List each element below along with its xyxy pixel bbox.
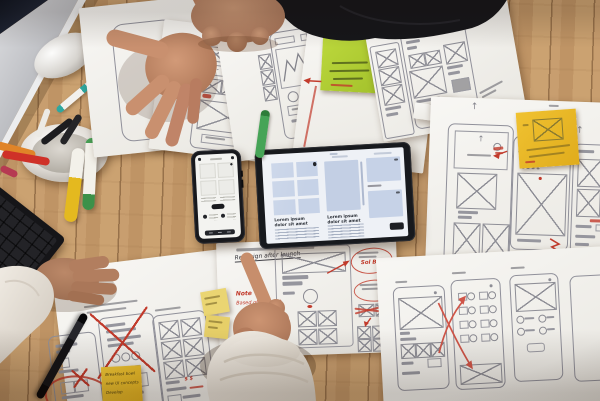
sketch-bar xyxy=(525,329,535,332)
wireframe-card xyxy=(218,179,235,195)
image-box-sketch xyxy=(381,84,405,106)
wireframe-card xyxy=(271,162,293,179)
smartphone xyxy=(191,149,246,244)
sketch-bar xyxy=(576,225,592,229)
phone-screen xyxy=(195,153,241,239)
panel-label xyxy=(367,184,381,187)
image-box-sketch xyxy=(158,320,180,340)
middle-finger xyxy=(79,275,113,276)
tablet-screen: Lorem ipsum dolor sit amet Lorem ipsum d… xyxy=(262,147,409,244)
handwriting xyxy=(333,77,363,80)
card-grid xyxy=(271,161,320,215)
content-panel xyxy=(324,160,361,212)
red-handwriting xyxy=(525,161,535,164)
sketch-bar xyxy=(546,316,554,318)
circle-sketch xyxy=(287,90,300,103)
red-mark xyxy=(590,219,600,222)
title-dash xyxy=(210,157,222,160)
workspace-photo: 14 ⌄ xyxy=(0,0,600,401)
cta-pill-button xyxy=(211,204,224,210)
image-box-sketch xyxy=(163,360,185,380)
sketch-bar xyxy=(458,211,478,214)
dark-sleeve xyxy=(270,0,508,41)
handwriting-label xyxy=(395,281,407,284)
phone-sketch xyxy=(450,278,506,390)
handwriting-label xyxy=(452,272,466,275)
image-box-sketch xyxy=(430,342,445,358)
circle-sketch xyxy=(516,316,524,324)
handwriting xyxy=(529,152,565,158)
up-arrow-sketch: ↑ xyxy=(471,102,479,112)
circle-sketch xyxy=(488,291,496,299)
index-finger xyxy=(75,262,103,266)
profile-icon xyxy=(231,156,234,159)
icon-box-sketch xyxy=(481,333,490,341)
sketch-bar xyxy=(524,317,534,320)
list-item-icon xyxy=(221,214,225,218)
resting-hand xyxy=(0,242,130,377)
red-arrow-left xyxy=(301,72,327,89)
circle-sketch xyxy=(517,328,525,336)
icon-box-sketch xyxy=(459,307,468,315)
pinky-finger xyxy=(73,296,99,300)
card-sketch xyxy=(577,159,600,188)
panel-b xyxy=(368,189,403,218)
wireframe-card xyxy=(297,179,319,196)
circle-sketch xyxy=(489,319,497,327)
header-dash xyxy=(332,155,348,158)
sketch-bar xyxy=(575,243,589,246)
sticky-line: Develop xyxy=(106,389,123,395)
sketch-bar xyxy=(578,150,594,153)
menu-icon xyxy=(198,158,201,161)
fist-shading xyxy=(198,36,278,52)
sticky-line: new UI concepts xyxy=(106,379,139,386)
image-box-sketch xyxy=(400,343,416,359)
sketch-on-sticky xyxy=(532,118,563,142)
price-annotation: $ $ xyxy=(184,375,193,382)
side-button xyxy=(241,171,243,177)
image-box-sketch xyxy=(357,339,371,352)
sketch-bar xyxy=(537,167,540,169)
side-button xyxy=(241,180,243,188)
phone-sketch xyxy=(393,285,450,392)
circle-sketch xyxy=(469,334,477,342)
header-dash xyxy=(374,152,392,155)
icon-box-sketch xyxy=(167,394,182,401)
image-box-sketch xyxy=(180,317,202,337)
tablet: Lorem ipsum dolor sit amet Lorem ipsum d… xyxy=(254,142,415,250)
card-icon xyxy=(313,163,316,166)
handwriting-label xyxy=(155,306,181,311)
wireframe-card xyxy=(298,198,320,215)
thumb xyxy=(115,38,160,50)
phone-sketch: ↑ xyxy=(443,123,514,263)
image-box-sketch xyxy=(161,340,183,360)
wireframe-card xyxy=(200,180,217,196)
circle-sketch xyxy=(489,305,497,313)
caption-lines xyxy=(220,196,235,201)
body-text-lines xyxy=(328,223,365,238)
circle-sketch xyxy=(538,314,546,322)
sketch-bar xyxy=(166,380,180,385)
thumb-box-sketch xyxy=(263,85,278,102)
handwriting xyxy=(523,124,529,126)
sketch-bar xyxy=(385,105,401,111)
sketch-bar xyxy=(402,371,420,375)
body-text-lines xyxy=(275,227,320,240)
nav-dash xyxy=(218,231,222,232)
sketch-bar xyxy=(458,216,472,219)
red-annotation xyxy=(495,152,503,154)
circle-sketch xyxy=(468,320,476,328)
image-box-sketch xyxy=(415,343,431,359)
camera-dot-sketch xyxy=(434,291,437,294)
nav-dash xyxy=(209,232,213,233)
pinky-finger xyxy=(193,84,196,118)
fist-and-dark-sleeve xyxy=(190,0,520,73)
handwriting-label xyxy=(549,105,559,107)
list-item-icon xyxy=(203,215,207,219)
sketch-bar xyxy=(400,337,416,341)
red-margin-line xyxy=(303,86,316,147)
sketch-bar xyxy=(166,386,186,391)
icon-box-sketch xyxy=(480,305,489,313)
wireframe-card xyxy=(272,181,294,198)
icon-box-sketch xyxy=(460,334,469,342)
hero-image-sketch xyxy=(398,296,444,330)
icon-box-sketch xyxy=(427,358,441,368)
circle-sketch xyxy=(467,292,475,300)
hero-image-sketch xyxy=(515,282,557,312)
image-box-sketch xyxy=(357,326,371,339)
hero-image-sketch xyxy=(515,173,567,237)
up-arrow-sketch: ↑ xyxy=(477,134,484,143)
circle-sketch xyxy=(468,306,476,314)
list-item-lines xyxy=(209,214,218,220)
phone-card-grid xyxy=(199,162,235,196)
icon-box-sketch xyxy=(458,293,467,301)
icon-box-sketch xyxy=(459,321,468,329)
image-box-sketch xyxy=(460,363,503,385)
icon-box-sketch xyxy=(479,291,488,299)
wireframe-card xyxy=(199,163,216,179)
handwriting xyxy=(467,154,491,157)
phone-sketch xyxy=(569,274,600,382)
card-icon xyxy=(230,163,232,165)
icon-box-sketch xyxy=(480,319,489,327)
sketch-bar xyxy=(517,239,541,242)
sleeve-cuff xyxy=(228,337,300,367)
image-box-sketch xyxy=(456,173,497,210)
camera-dot-sketch xyxy=(489,284,492,287)
camera-dot-sketch xyxy=(548,278,551,281)
menu-dots-icon xyxy=(396,191,400,193)
red-handwriting xyxy=(331,84,353,87)
bottom-nav-bar xyxy=(205,229,235,235)
nav-dash xyxy=(227,231,231,232)
sketch-bar xyxy=(386,112,398,117)
circle-sketch xyxy=(539,326,547,334)
wireframe-card xyxy=(273,199,295,216)
card-sketch xyxy=(576,189,600,218)
sketch-bar xyxy=(547,328,555,330)
menu-dots-icon xyxy=(394,158,398,160)
phone-sketch xyxy=(509,273,564,382)
caption-lines xyxy=(201,197,216,202)
yellow-sticky-note xyxy=(516,109,580,169)
sketch-bar xyxy=(182,394,200,399)
icon-box-sketch xyxy=(595,224,600,231)
header-box-sketch: ↑ xyxy=(454,130,509,170)
handwriting xyxy=(526,144,570,151)
cta-button xyxy=(390,222,404,230)
pointing-hand xyxy=(200,246,340,401)
list-item-lines xyxy=(227,213,236,219)
ring-finger xyxy=(77,287,111,289)
sketch-bar xyxy=(575,235,595,239)
scrollbar xyxy=(360,161,364,205)
circle-sketch xyxy=(490,333,498,341)
index-finger xyxy=(247,259,266,304)
paper-screen-flow xyxy=(376,246,600,401)
button-sketch xyxy=(527,343,545,353)
sketch-bar xyxy=(400,332,410,336)
section-heading: Lorem ipsum dolor sit amet xyxy=(274,215,318,228)
dark-block-sketch xyxy=(451,77,471,93)
handwriting-label xyxy=(511,266,525,269)
sketch-bar xyxy=(401,361,413,365)
panel-a xyxy=(366,156,401,182)
